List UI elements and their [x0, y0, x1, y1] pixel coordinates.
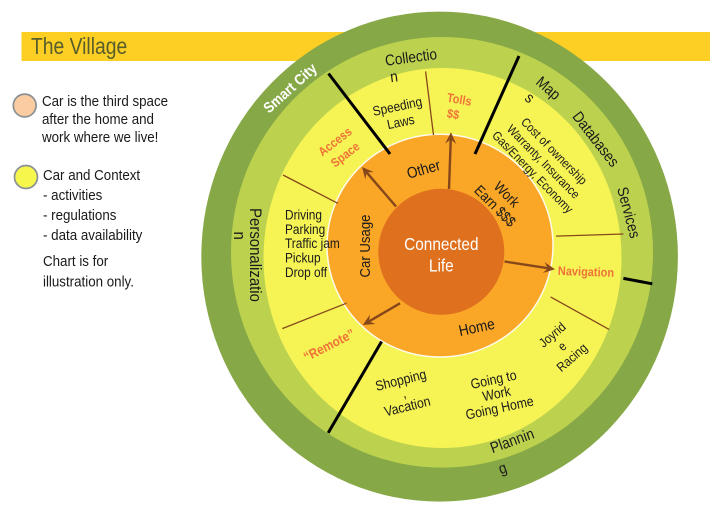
svg-text:Chart is forillustration only.: Chart is forillustration only. — [43, 253, 134, 290]
svg-text:Car Usage: Car Usage — [356, 214, 373, 277]
svg-text:Car is the third spaceafter th: Car is the third spaceafter the home and… — [41, 93, 168, 146]
svg-text:Car and Context- activities- r: Car and Context- activities- regulations… — [43, 167, 143, 244]
svg-text:Navigation: Navigation — [558, 264, 615, 280]
svg-text:The Village: The Village — [31, 35, 127, 60]
